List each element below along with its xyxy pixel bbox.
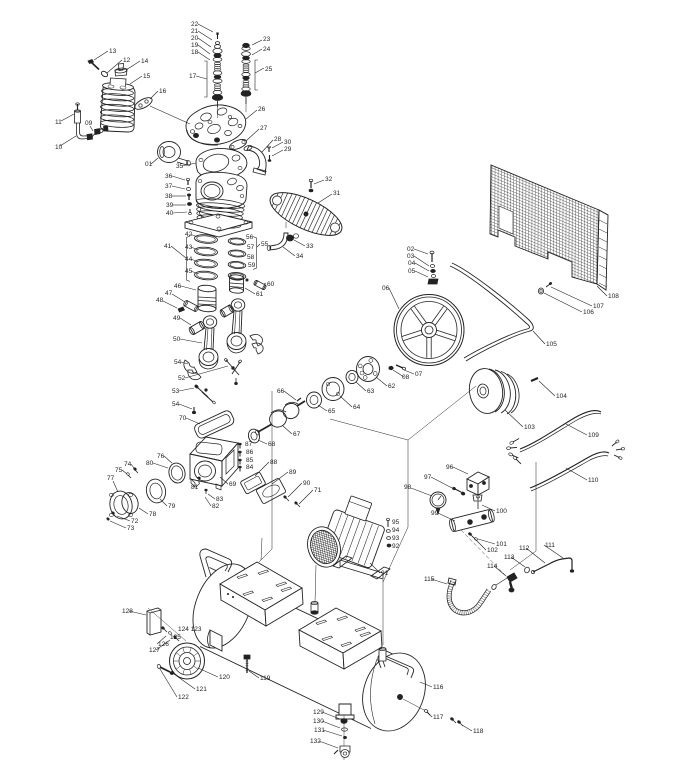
svg-text:13: 13 [109,48,117,55]
svg-text:119: 119 [260,675,271,682]
svg-text:79: 79 [168,503,176,510]
svg-text:106: 106 [583,309,594,316]
svg-text:41: 41 [164,243,172,250]
svg-text:03: 03 [407,253,415,260]
svg-text:25: 25 [265,66,273,73]
svg-text:66: 66 [277,388,285,395]
svg-text:118: 118 [473,728,484,735]
svg-text:62: 62 [388,383,396,390]
svg-text:22: 22 [191,21,199,28]
svg-text:88: 88 [270,459,278,466]
svg-text:09: 09 [85,120,93,127]
svg-text:112: 112 [519,545,530,552]
svg-text:55: 55 [261,241,269,248]
svg-text:40: 40 [166,210,174,217]
svg-text:60: 60 [267,281,275,288]
svg-text:84: 84 [246,464,254,471]
svg-text:54: 54 [174,359,182,366]
svg-text:92: 92 [392,543,400,550]
svg-text:131: 131 [314,727,325,734]
svg-text:19: 19 [191,42,199,49]
svg-text:96: 96 [446,464,454,471]
svg-text:29: 29 [284,146,292,153]
svg-text:69: 69 [229,481,237,488]
svg-text:93: 93 [392,535,400,542]
svg-text:53: 53 [172,388,180,395]
svg-text:12: 12 [123,57,131,64]
svg-text:103: 103 [524,424,535,431]
svg-text:04: 04 [408,260,416,267]
svg-text:32: 32 [325,176,333,183]
svg-text:114: 114 [487,563,498,570]
svg-text:122: 122 [178,694,189,701]
svg-text:15: 15 [143,73,151,80]
svg-text:75: 75 [115,467,123,474]
svg-text:82: 82 [212,503,220,510]
svg-text:102: 102 [487,547,498,554]
svg-text:105: 105 [546,341,557,348]
svg-text:95: 95 [392,519,400,526]
svg-text:116: 116 [433,684,444,691]
svg-text:81: 81 [191,484,199,491]
svg-text:64: 64 [353,404,361,411]
svg-text:120: 120 [219,674,230,681]
svg-text:48: 48 [156,297,164,304]
svg-text:06: 06 [382,285,390,292]
svg-text:86: 86 [246,449,254,456]
svg-text:94: 94 [392,527,400,534]
svg-text:14: 14 [141,58,149,65]
svg-text:34: 34 [296,253,304,260]
svg-text:56: 56 [246,234,254,241]
svg-text:49: 49 [173,315,181,322]
svg-text:05: 05 [408,268,416,275]
svg-text:47: 47 [165,290,173,297]
svg-text:78: 78 [149,511,157,518]
svg-text:104: 104 [556,393,567,400]
svg-text:23: 23 [263,36,271,43]
svg-text:02: 02 [407,246,415,253]
svg-text:37: 37 [165,183,173,190]
svg-text:98: 98 [404,484,412,491]
svg-text:21: 21 [191,28,199,35]
svg-text:90: 90 [303,480,311,487]
svg-text:27: 27 [260,125,268,132]
svg-text:01: 01 [145,161,153,168]
svg-text:73: 73 [127,525,135,532]
svg-text:11: 11 [55,119,62,126]
svg-text:80: 80 [146,460,154,467]
svg-text:67: 67 [293,431,301,438]
svg-text:89: 89 [289,469,297,476]
svg-text:71: 71 [314,487,322,494]
svg-text:36: 36 [165,173,173,180]
svg-text:16: 16 [159,88,167,95]
svg-text:65: 65 [328,408,336,415]
svg-text:100: 100 [496,508,507,515]
svg-text:28: 28 [274,136,282,143]
svg-text:54: 54 [172,401,180,408]
svg-text:46: 46 [174,283,182,290]
svg-text:113: 113 [504,554,515,561]
svg-text:52: 52 [178,375,186,382]
svg-text:50: 50 [173,336,181,343]
svg-text:35: 35 [176,163,184,170]
svg-text:124 123: 124 123 [178,626,202,633]
svg-text:99: 99 [431,510,439,517]
svg-text:83: 83 [216,496,224,503]
svg-text:08: 08 [402,374,410,381]
svg-text:97: 97 [424,474,432,481]
svg-text:111: 111 [545,542,555,549]
svg-text:117: 117 [433,714,444,721]
svg-text:77: 77 [107,475,115,482]
svg-text:76: 76 [157,453,165,460]
svg-text:07: 07 [415,371,423,378]
svg-text:109: 109 [588,432,599,439]
svg-text:61: 61 [256,291,264,298]
svg-text:108: 108 [608,293,619,300]
svg-text:107: 107 [593,303,604,310]
svg-text:85: 85 [246,457,254,464]
svg-text:20: 20 [191,35,199,42]
svg-text:59: 59 [248,262,256,269]
svg-text:39: 39 [166,202,174,209]
svg-text:31: 31 [333,190,341,197]
svg-text:30: 30 [284,139,292,146]
svg-text:74: 74 [124,461,132,468]
svg-text:26: 26 [258,106,266,113]
svg-text:33: 33 [306,243,314,250]
svg-text:57: 57 [247,244,255,251]
svg-text:38: 38 [165,193,173,200]
svg-text:24: 24 [263,46,271,53]
svg-text:91: 91 [381,570,389,577]
svg-text:17: 17 [189,73,197,80]
svg-text:63: 63 [367,388,375,395]
svg-text:125: 125 [170,634,181,641]
svg-text:110: 110 [588,477,599,484]
svg-text:18: 18 [191,49,199,56]
svg-text:58: 58 [247,254,255,261]
svg-text:70: 70 [179,415,187,422]
svg-text:121: 121 [196,686,207,693]
svg-text:72: 72 [131,518,139,525]
